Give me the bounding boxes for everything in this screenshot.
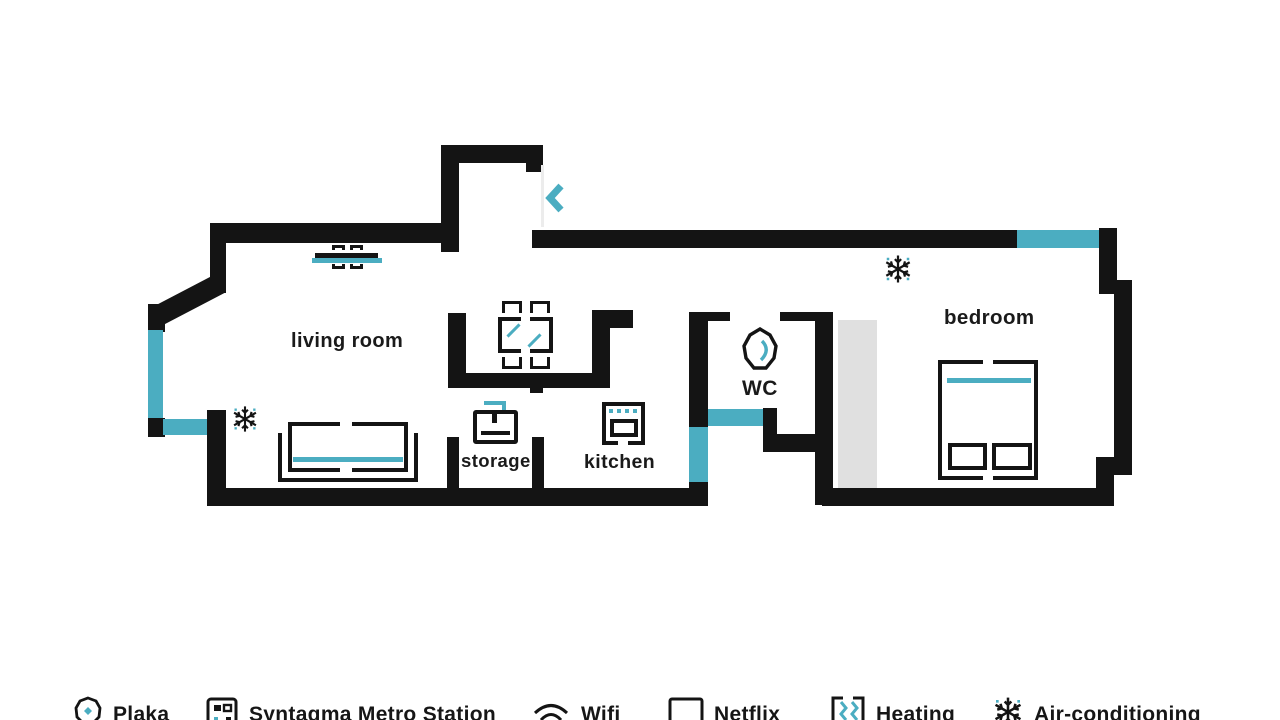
wall-segment xyxy=(447,437,459,491)
outline-gap xyxy=(341,474,353,478)
metro-icon xyxy=(205,696,239,720)
room-label-bedroom: bedroom xyxy=(944,306,1035,330)
outline-gap xyxy=(340,422,352,426)
sofa xyxy=(278,422,418,482)
outline-gap xyxy=(521,349,530,353)
wall-segment xyxy=(530,385,543,393)
legend-label: Plaka xyxy=(113,696,169,720)
sofa-cushion-line xyxy=(293,457,403,462)
window-symbol xyxy=(312,245,382,271)
outline-gap xyxy=(618,441,628,445)
wall-segment xyxy=(532,230,1017,248)
room-label-wc: WC xyxy=(742,377,778,401)
appliance-line xyxy=(481,431,510,435)
legend-item-heating: Heating xyxy=(830,696,955,720)
window-marker xyxy=(689,427,708,482)
storage-appliance-icon xyxy=(473,396,523,446)
window-bracket xyxy=(332,245,345,250)
bed-blanket-line xyxy=(947,378,1031,383)
legend-label: Air-conditioning xyxy=(1034,696,1201,720)
oven-knob xyxy=(633,409,637,413)
wall-segment xyxy=(765,434,815,452)
window-marker xyxy=(1017,230,1099,248)
wall-segment xyxy=(815,312,833,505)
room-label-storage: storage xyxy=(461,450,531,472)
oven-door xyxy=(610,419,638,437)
legend-item-air-conditioning: Air-conditioning xyxy=(992,696,1201,720)
legend-item-syntagma: Syntagma Metro Station xyxy=(205,696,496,720)
legend-label: Wifi xyxy=(581,696,621,720)
legend-label: Syntagma Metro Station xyxy=(249,696,496,720)
wall-segment xyxy=(532,437,544,491)
bed-pillow xyxy=(992,443,1032,470)
window-marker xyxy=(163,419,207,435)
legend-label: Netflix xyxy=(714,696,780,720)
oven-knob xyxy=(617,409,621,413)
wall-segment xyxy=(689,312,730,321)
legend-item-wifi: Wifi xyxy=(531,696,621,720)
chair xyxy=(530,301,550,313)
legend-item-plaka: Plaka xyxy=(73,696,169,720)
tv-icon xyxy=(668,696,704,720)
oven-knob xyxy=(609,409,613,413)
wifi-icon xyxy=(531,696,571,720)
outline-gap xyxy=(521,317,530,321)
wall-segment xyxy=(689,312,708,427)
floor-plan-canvas: living room storage kitchen WC bedroom P… xyxy=(0,0,1280,720)
appliance-latch xyxy=(492,414,497,423)
snowflake-icon xyxy=(992,696,1024,720)
window-bracket xyxy=(350,264,363,269)
air-conditioner-snowflake-icon xyxy=(231,405,259,433)
wall-segment xyxy=(210,488,708,506)
sofa-seat xyxy=(288,422,408,472)
wall-segment xyxy=(1114,280,1132,475)
wall-segment xyxy=(148,304,165,332)
wc-toilet-icon xyxy=(741,327,779,373)
wall-segment xyxy=(448,373,610,388)
chair xyxy=(502,357,522,369)
entrance-glass-line xyxy=(541,165,544,227)
entrance-arrow-icon xyxy=(545,183,567,213)
window-bracket xyxy=(332,264,345,269)
closet-strip xyxy=(838,320,877,488)
wall-segment xyxy=(822,488,1114,506)
window-bracket xyxy=(350,245,363,250)
plaka-pin-icon xyxy=(73,696,103,720)
room-label-living-room: living room xyxy=(291,330,403,353)
outline-gap xyxy=(340,468,352,472)
heating-icon xyxy=(830,696,866,720)
outline-gap xyxy=(983,360,993,364)
chair xyxy=(502,301,522,313)
wall-segment xyxy=(592,310,633,328)
oven-icon xyxy=(602,402,645,445)
window-bar-teal xyxy=(312,258,382,263)
wall-segment xyxy=(210,223,458,243)
room-label-kitchen: kitchen xyxy=(584,451,655,474)
oven-knob xyxy=(625,409,629,413)
outline-gap xyxy=(983,476,993,480)
legend-label: Heating xyxy=(876,696,955,720)
door-marker xyxy=(708,409,763,426)
chair xyxy=(530,357,550,369)
wall-segment xyxy=(689,482,708,506)
bed xyxy=(938,360,1038,480)
air-conditioner-snowflake-icon xyxy=(883,254,913,284)
bed-pillow xyxy=(948,443,987,470)
legend-item-netflix: Netflix xyxy=(668,696,780,720)
window-marker xyxy=(148,330,163,418)
